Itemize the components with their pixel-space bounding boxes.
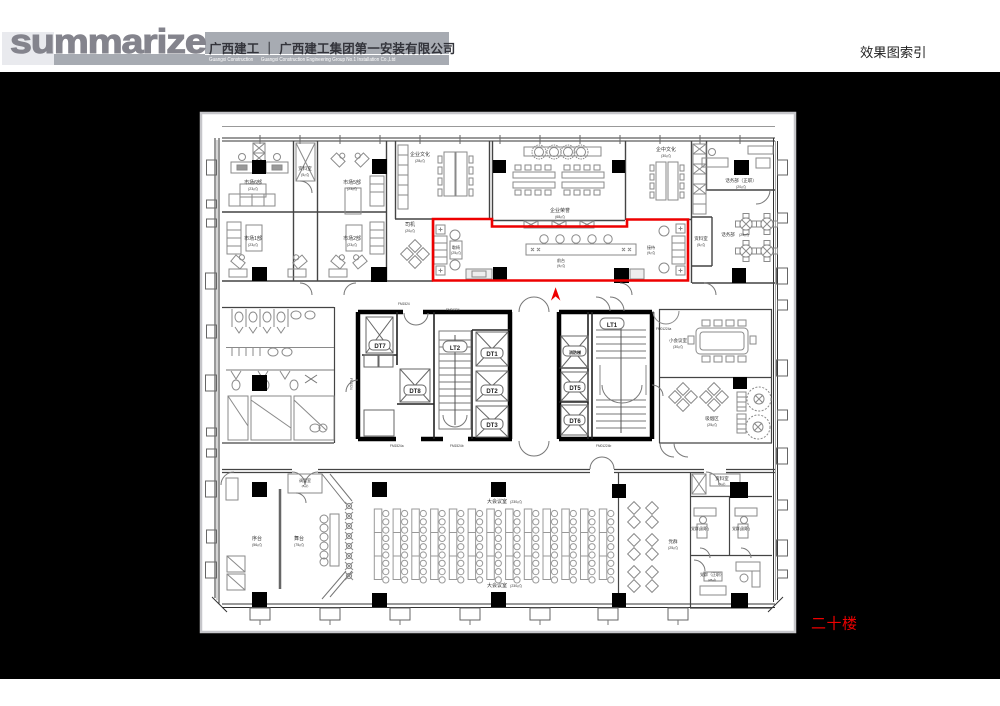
svg-text:FM01224a: FM01224a (656, 327, 671, 331)
svg-text:(75㎡): (75㎡) (294, 542, 304, 547)
svg-text:LT1: LT1 (607, 323, 618, 329)
svg-text:小会议室: 小会议室 (669, 337, 687, 344)
svg-text:(23㎡): (23㎡) (347, 242, 357, 247)
svg-text:(8㎡): (8㎡) (302, 483, 309, 488)
svg-text:(5㎡): (5㎡) (301, 172, 309, 177)
svg-text:企业文化: 企业文化 (410, 151, 430, 158)
svg-text:企中文化: 企中文化 (656, 146, 676, 153)
svg-text:DT5: DT5 (569, 386, 581, 392)
svg-text:吸烟区: 吸烟区 (705, 415, 719, 422)
svg-text:党群（正职）: 党群（正职） (700, 571, 724, 577)
svg-text:舞台: 舞台 (294, 535, 304, 542)
svg-text:(9㎡): (9㎡) (719, 481, 726, 486)
svg-text:(25㎡): (25㎡) (739, 232, 749, 237)
svg-text:(230㎡): (230㎡) (510, 583, 522, 588)
svg-text:LT2: LT2 (450, 346, 461, 352)
svg-text:(28㎡): (28㎡) (708, 577, 716, 582)
svg-text:党群(副职): 党群(副职) (732, 526, 750, 531)
svg-text:DT6: DT6 (569, 419, 581, 425)
svg-text:(25㎡): (25㎡) (451, 250, 461, 255)
svg-text:DT1: DT1 (486, 352, 498, 358)
svg-text:FM01224: FM01224 (446, 308, 460, 312)
svg-text:DT8: DT8 (409, 389, 421, 395)
svg-text:歇椅: 歇椅 (452, 244, 460, 250)
svg-text:(23㎡): (23㎡) (347, 186, 357, 191)
svg-text:接待: 接待 (647, 244, 655, 250)
svg-text:资料室: 资料室 (715, 475, 729, 482)
svg-text:DT7: DT7 (374, 344, 386, 350)
svg-text:(20㎡): (20㎡) (405, 228, 415, 233)
svg-text:司机: 司机 (405, 221, 415, 228)
svg-text:(9㎡): (9㎡) (557, 263, 565, 268)
svg-text:(23㎡): (23㎡) (248, 242, 258, 247)
svg-text:(25㎡): (25㎡) (668, 545, 678, 550)
svg-text:FM01224b: FM01224b (596, 444, 611, 448)
svg-text:(9㎡): (9㎡) (647, 250, 655, 255)
svg-text:(28㎡): (28㎡) (415, 158, 425, 163)
svg-text:(30㎡): (30㎡) (673, 344, 683, 349)
svg-text:序台: 序台 (252, 535, 262, 542)
svg-text:消防梯: 消防梯 (569, 349, 581, 355)
svg-text:(5㎡): (5㎡) (697, 242, 705, 247)
svg-text:调音室: 调音室 (299, 477, 311, 483)
svg-text:大会议室: 大会议室 (487, 582, 507, 589)
svg-text:党群(副职): 党群(副职) (691, 526, 709, 531)
svg-text:(68㎡): (68㎡) (555, 214, 565, 219)
svg-text:二十楼: 二十楼 (811, 616, 858, 633)
svg-text:市场5部: 市场5部 (343, 179, 361, 186)
svg-text:市场1部: 市场1部 (244, 235, 262, 242)
svg-text:DT2: DT2 (486, 389, 498, 395)
svg-text:(30㎡): (30㎡) (661, 153, 671, 158)
svg-text:资料室: 资料室 (694, 235, 708, 242)
svg-text:前台: 前台 (557, 257, 565, 263)
svg-text:(23㎡): (23㎡) (248, 186, 258, 191)
svg-text:(25㎡): (25㎡) (707, 422, 717, 427)
svg-text:党群: 党群 (669, 538, 678, 545)
svg-text:资料室: 资料室 (298, 165, 312, 172)
svg-text:市场2部: 市场2部 (343, 235, 361, 242)
svg-text:话务部: 话务部 (721, 231, 735, 238)
svg-text:FM1524a: FM1524a (390, 444, 404, 448)
svg-text:FM1524: FM1524 (398, 302, 410, 306)
svg-text:(20㎡): (20㎡) (736, 184, 746, 189)
svg-text:话务部（正职）: 话务部（正职） (725, 177, 757, 184)
svg-text:大会议室: 大会议室 (487, 498, 507, 505)
svg-text:(230㎡): (230㎡) (510, 499, 522, 504)
svg-text:企业荣誉: 企业荣誉 (550, 207, 570, 214)
svg-text:FM1524b: FM1524b (450, 444, 464, 448)
svg-text:DT3: DT3 (486, 423, 498, 429)
svg-text:市场6部: 市场6部 (244, 179, 262, 186)
svg-text:(56㎡): (56㎡) (252, 542, 262, 547)
